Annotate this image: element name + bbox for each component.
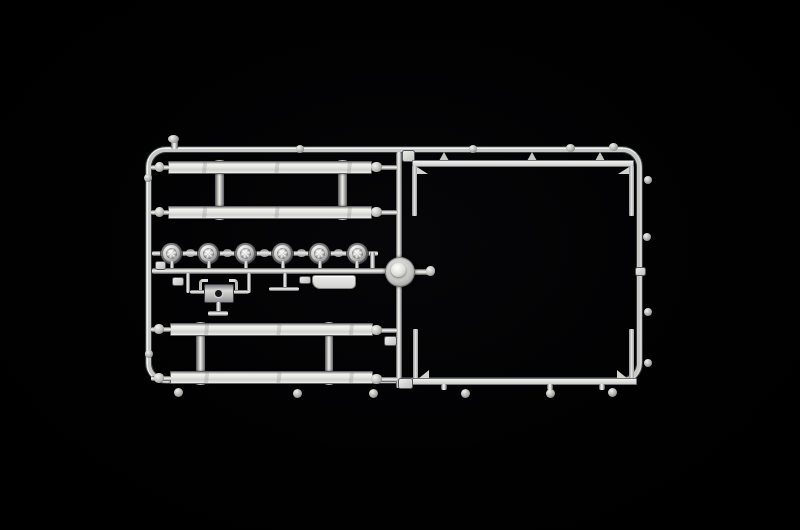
lamp-core [240, 248, 251, 259]
small-tab-part [155, 261, 166, 270]
flat-plate-part [312, 275, 356, 289]
rail-gate [547, 384, 553, 390]
gate-bulge [297, 249, 306, 257]
gate-bulge [260, 249, 269, 257]
rail-leg [629, 166, 634, 216]
lamp-core [314, 248, 325, 259]
small-tab-part [398, 378, 413, 389]
hub-dome [391, 263, 406, 277]
gate-bulge [186, 249, 195, 257]
bracket-link [233, 290, 249, 294]
bracket-hole [215, 290, 222, 297]
pin-crossbar [269, 287, 299, 291]
small-tab-part [172, 277, 184, 286]
guard-rail-top [412, 160, 634, 167]
lamp-core [277, 248, 288, 259]
rail-leg [413, 329, 418, 379]
coupler-nub [371, 374, 382, 384]
small-tab-part [384, 336, 397, 346]
lamp-core [166, 248, 177, 259]
coupler-nub [371, 325, 382, 335]
runner-link [380, 377, 397, 382]
lamp-core [352, 248, 363, 259]
rail-gate [599, 384, 605, 390]
lamp-core [203, 248, 214, 259]
sprue-photo [0, 0, 800, 530]
chassis-bar-part [170, 323, 373, 336]
small-tab-part [299, 276, 311, 284]
chassis-bar-part [170, 371, 373, 384]
gate-bulge [223, 249, 232, 257]
rail-gate [441, 384, 447, 390]
runner-link [380, 328, 397, 333]
bracket-foot [208, 311, 228, 316]
gate-bulge [334, 249, 343, 257]
coupler-nub [154, 373, 164, 383]
axle-pin [283, 273, 287, 288]
rail-leg [629, 329, 634, 379]
rail-leg [412, 166, 417, 216]
coupler-nub [154, 324, 164, 334]
hub-arm-nub [426, 266, 435, 276]
